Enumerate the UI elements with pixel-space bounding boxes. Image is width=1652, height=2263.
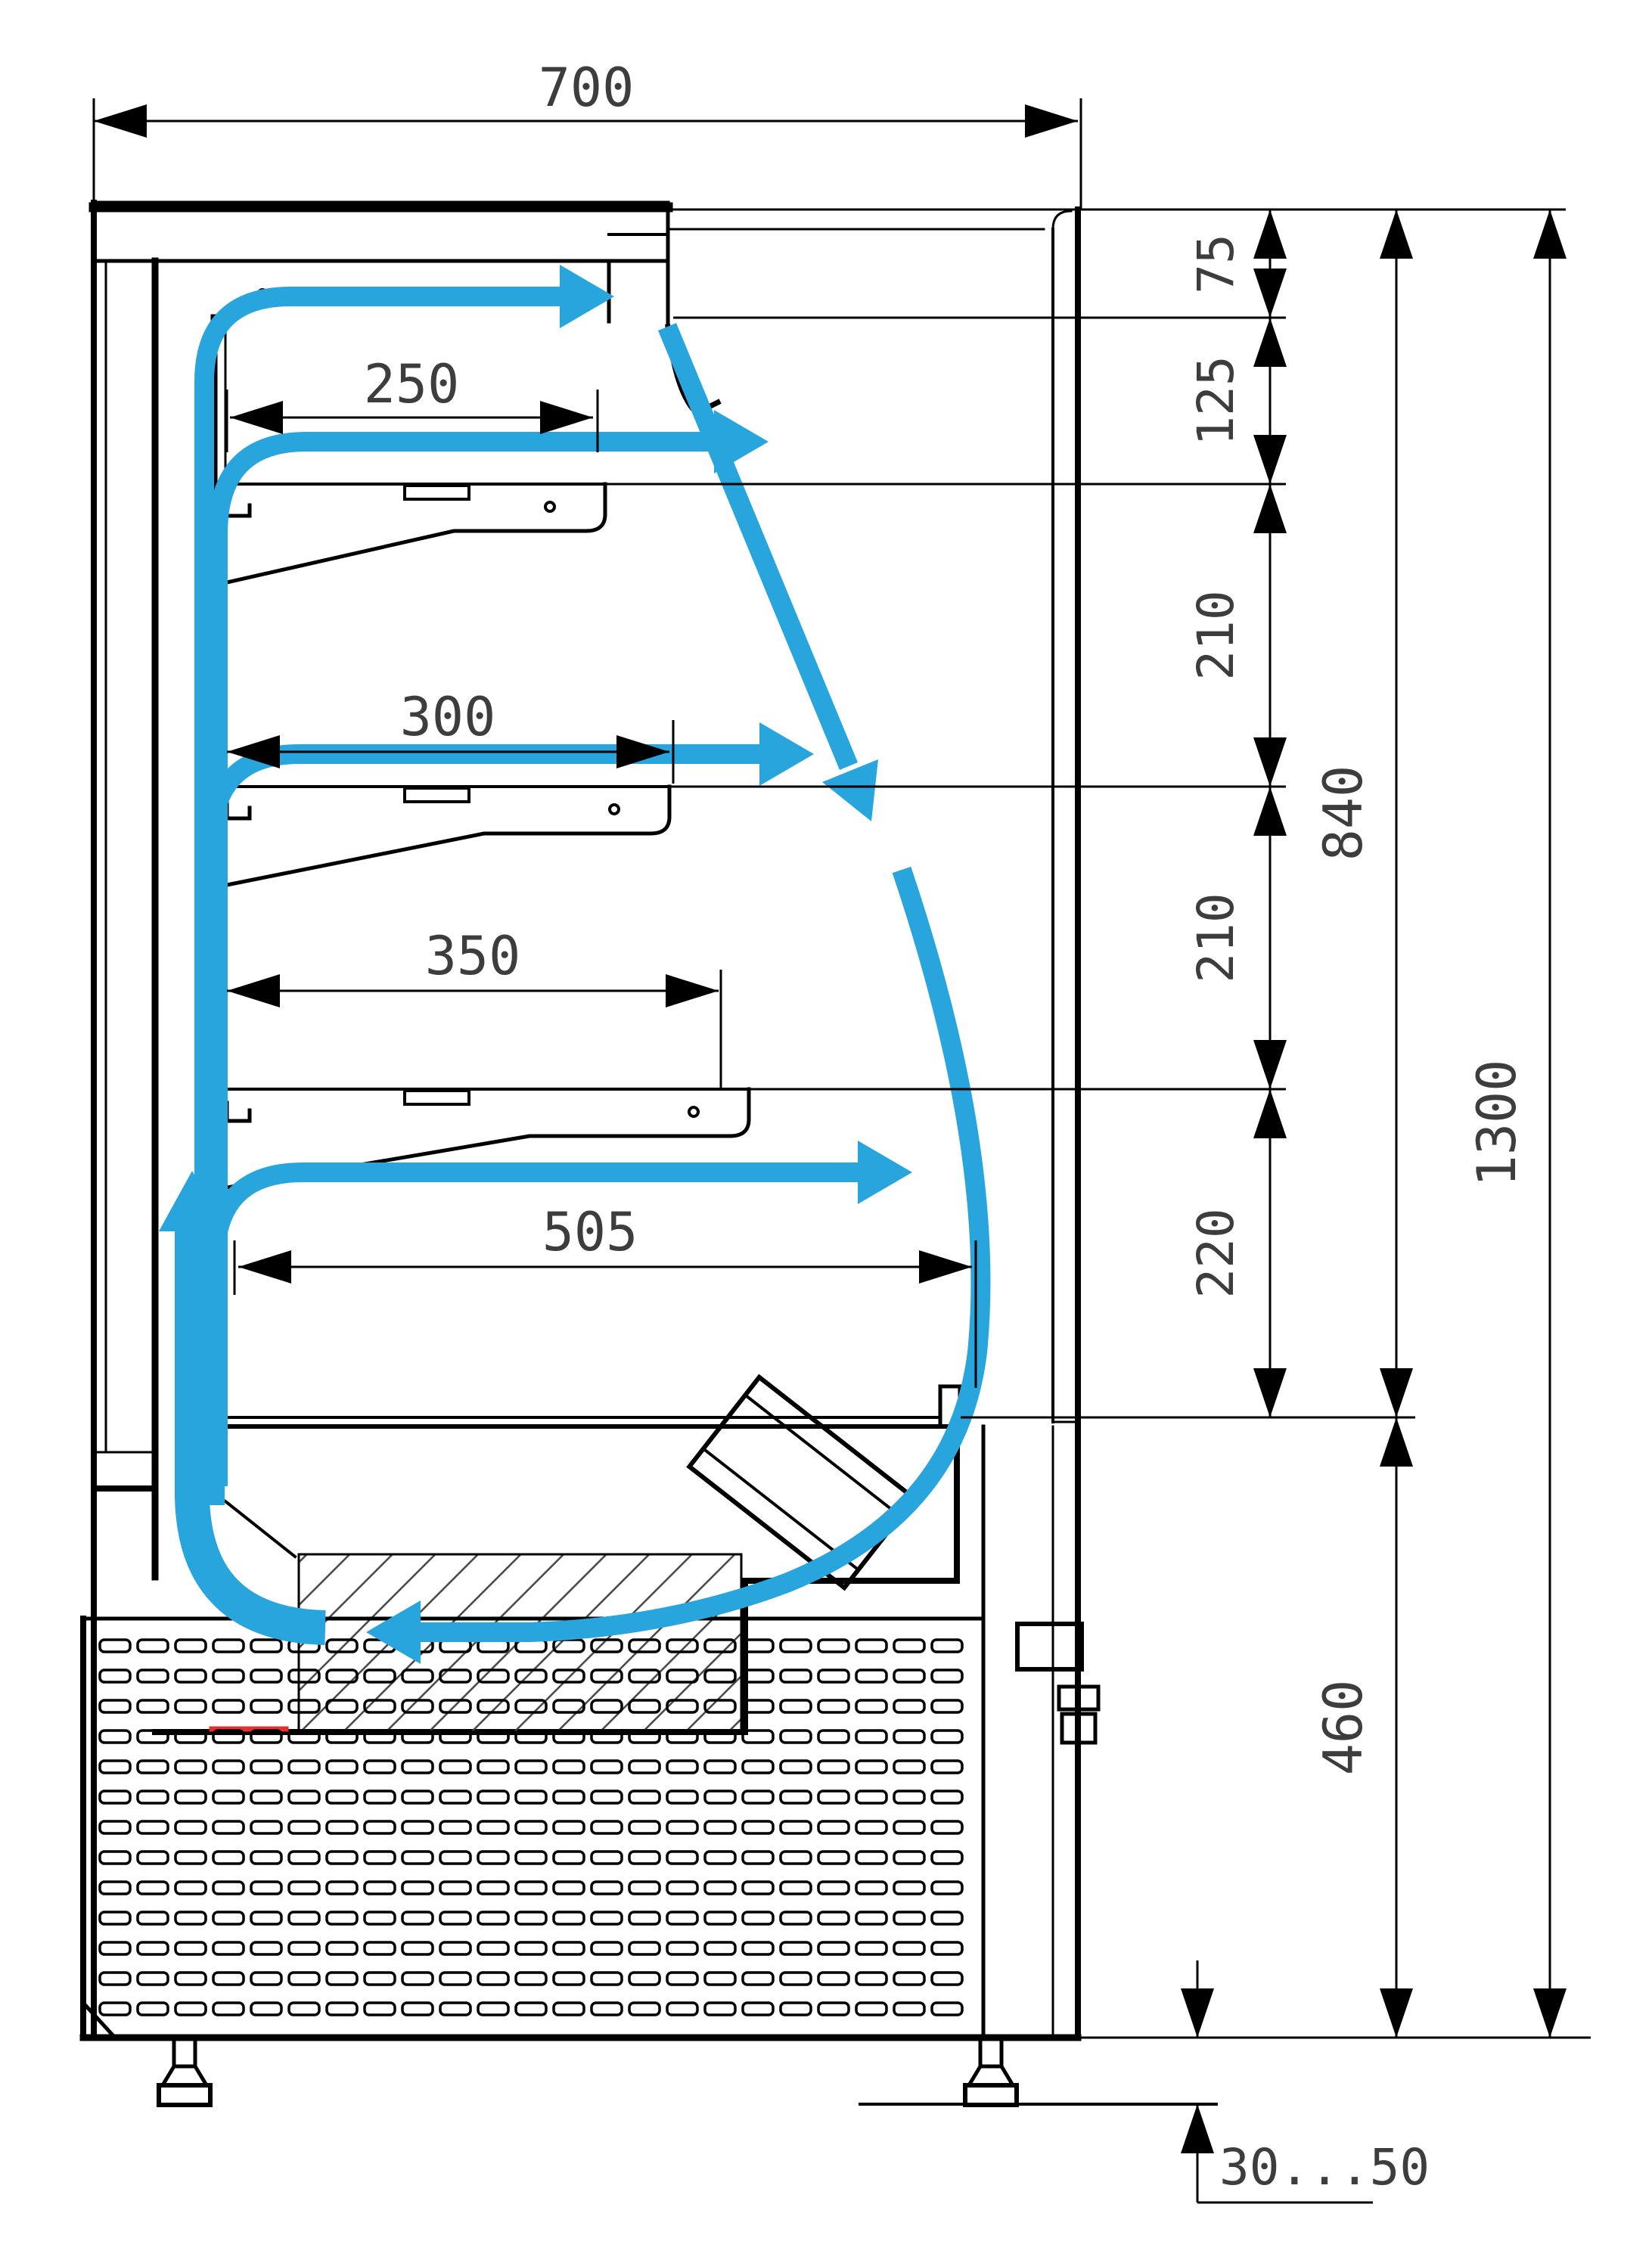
louvre-slot — [478, 1761, 508, 1773]
louvre-slot — [894, 1882, 924, 1894]
louvre-slot — [289, 2003, 319, 2015]
louvre-slot — [213, 1942, 244, 1954]
louvre-slot — [629, 1973, 660, 1985]
dimension-840-460 — [1380, 210, 1413, 2038]
louvre-slot — [213, 1791, 244, 1803]
louvre-slot — [894, 1761, 924, 1773]
louvre-slot — [213, 1882, 244, 1894]
louvre-slot — [743, 1973, 773, 1985]
louvre-slot — [251, 1791, 281, 1803]
louvre-slot — [743, 2003, 773, 2015]
louvre-slot — [365, 1791, 395, 1803]
louvre-slot — [667, 2003, 697, 2015]
louvre-slot — [213, 1852, 244, 1864]
louvre-slot — [138, 1882, 168, 1894]
louvre-slot — [818, 1700, 849, 1712]
dimension-labels: 700 250 300 350 505 75 125 210 210 220 8… — [364, 57, 1528, 2196]
louvre-slot — [554, 1912, 584, 1924]
louvre-slot — [894, 1791, 924, 1803]
louvre-slot — [667, 1882, 697, 1894]
louvre-slot — [856, 1700, 887, 1712]
louvre-slot — [365, 1882, 395, 1894]
louvre-slot — [327, 1912, 357, 1924]
louvre-slot — [629, 1942, 660, 1954]
label-shelf3-depth: 350 — [425, 925, 520, 987]
louvre-slot — [213, 1700, 244, 1712]
louvre-slot — [138, 1670, 168, 1682]
louvre-slot — [932, 1821, 962, 1833]
louvre-slot — [781, 1973, 811, 1985]
louvre-slot — [175, 1670, 206, 1682]
shelf-1-clip — [405, 486, 469, 499]
louvre-slot — [440, 1973, 470, 1985]
louvre-slot — [592, 2003, 622, 2015]
louvre-slot — [592, 1761, 622, 1773]
louvre-slot — [894, 1973, 924, 1985]
louvre-slot — [894, 2003, 924, 2015]
louvre-slot — [554, 1882, 584, 1894]
louvre-slot — [440, 1821, 470, 1833]
louvre-slot — [251, 1670, 281, 1682]
louvre-slot — [175, 1761, 206, 1773]
louvre-slot — [138, 1942, 168, 1954]
louvre-slot — [932, 2003, 962, 2015]
louvre-slot — [175, 1882, 206, 1894]
shelf-2-screw — [610, 805, 619, 814]
louvre-slot — [894, 1821, 924, 1833]
louvre-slot — [251, 1700, 281, 1712]
louvre-slot — [516, 1942, 546, 1954]
louvre-slot — [100, 1731, 130, 1743]
louvre-slot — [818, 1761, 849, 1773]
louvre-slot — [516, 1912, 546, 1924]
label-deck-depth: 505 — [542, 1201, 638, 1263]
louvre-slot — [138, 1640, 168, 1652]
louvre-slot — [138, 1821, 168, 1833]
louvre-slot — [251, 1942, 281, 1954]
shelf-2-hook — [227, 800, 250, 818]
louvre-slot — [705, 2003, 735, 2015]
louvre-slot — [894, 1852, 924, 1864]
louvre-slot — [251, 1973, 281, 1985]
louvre-slot — [781, 1882, 811, 1894]
cross-section-drawing: 700 250 300 350 505 75 125 210 210 220 8… — [0, 0, 1652, 2263]
louvre-slot — [327, 1852, 357, 1864]
louvre-slot — [327, 1791, 357, 1803]
louvre-slot — [932, 1670, 962, 1682]
louvre-slot — [554, 2003, 584, 2015]
louvre-slot — [516, 1882, 546, 1894]
label-foot-range: 30...50 — [1219, 2138, 1430, 2196]
drawing-canvas: 700 250 300 350 505 75 125 210 210 220 8… — [0, 0, 1652, 2263]
dimension-stack-right — [1253, 210, 1287, 1417]
louvre-slot — [289, 1942, 319, 1954]
louvre-slot — [554, 1973, 584, 1985]
louvre-slot — [667, 1912, 697, 1924]
louvre-slot — [213, 1640, 244, 1652]
louvre-slot — [138, 1912, 168, 1924]
louvre-slot — [138, 1852, 168, 1864]
louvre-slot — [402, 1852, 433, 1864]
louvre-slot — [743, 1942, 773, 1954]
louvre-slot — [592, 1912, 622, 1924]
shelf-3-clip — [405, 1091, 469, 1104]
louvre-slot — [402, 1761, 433, 1773]
louvre-slot — [667, 1791, 697, 1803]
louvre-slot — [175, 1640, 206, 1652]
label-canopy-height: 75 — [1187, 234, 1245, 293]
label-overall-height: 1300 — [1466, 1060, 1528, 1187]
louvre-slot — [138, 1791, 168, 1803]
louvre-slot — [856, 1912, 887, 1924]
shelf-1-screw — [545, 502, 554, 511]
dimension-350 — [227, 970, 721, 1088]
airflow-discharge — [204, 296, 566, 1486]
louvre-slot — [478, 1852, 508, 1864]
louvre-slot — [592, 1973, 622, 1985]
louvre-slot — [781, 1731, 811, 1743]
dimension-1300 — [1533, 210, 1567, 2038]
louvre-slot — [402, 1821, 433, 1833]
louvre-slot — [856, 1821, 887, 1833]
louvre-slot — [894, 1942, 924, 1954]
louvre-slot — [440, 1791, 470, 1803]
louvre-slot — [818, 1670, 849, 1682]
louvre-slot — [289, 1852, 319, 1864]
louvre-slot — [554, 1791, 584, 1803]
louvre-slot — [289, 1791, 319, 1803]
louvre-slot — [100, 1791, 130, 1803]
louvre-slot — [138, 1761, 168, 1773]
louvre-slot — [402, 1912, 433, 1924]
louvre-slot — [894, 1670, 924, 1682]
louvre-slot — [100, 2003, 130, 2015]
louvre-slot — [100, 1973, 130, 1985]
louvre-slot — [478, 1973, 508, 1985]
louvre-slot — [629, 1852, 660, 1864]
louvre-slot — [289, 1912, 319, 1924]
louvre-slot — [327, 1761, 357, 1773]
louvre-slot — [856, 1942, 887, 1954]
label-shelf3-to-deck: 220 — [1187, 1208, 1245, 1298]
louvre-slot — [856, 1852, 887, 1864]
louvre-slot — [818, 1973, 849, 1985]
louvre-slot — [743, 1761, 773, 1773]
shelf-2-clip — [405, 788, 469, 802]
louvre-slot — [516, 1761, 546, 1773]
louvre-slot — [629, 1882, 660, 1894]
air-guide — [225, 1501, 295, 1557]
louvre-slot — [932, 1973, 962, 1985]
louvre-slot — [781, 2003, 811, 2015]
louvre-slot — [894, 1640, 924, 1652]
label-base-height: 460 — [1312, 1680, 1374, 1775]
louvre-slot — [592, 1882, 622, 1894]
louvre-slot — [100, 1912, 130, 1924]
louvre-slot — [516, 2003, 546, 2015]
louvre-slot — [289, 1973, 319, 1985]
louvre-slot — [327, 2003, 357, 2015]
louvre-slot — [818, 2003, 849, 2015]
louvre-slot — [440, 1942, 470, 1954]
louvre-slot — [251, 1852, 281, 1864]
louvre-slot — [743, 1821, 773, 1833]
louvre-slot — [365, 1761, 395, 1773]
label-overall-depth: 700 — [539, 57, 634, 119]
louvre-slot — [365, 1821, 395, 1833]
louvre-slot — [856, 2003, 887, 2015]
adjustable-foot-left — [159, 2038, 210, 2105]
louvre-slot — [781, 1761, 811, 1773]
louvre-slot — [440, 1912, 470, 1924]
louvre-slot — [100, 1670, 130, 1682]
label-shelf2-depth: 300 — [400, 686, 495, 748]
louvre-slot — [516, 1791, 546, 1803]
louvre-slot — [932, 1761, 962, 1773]
louvre-slot — [251, 2003, 281, 2015]
louvre-slot — [440, 1852, 470, 1864]
louvre-slot — [327, 1973, 357, 1985]
louvre-slot — [100, 1700, 130, 1712]
louvre-slot — [667, 1942, 697, 1954]
louvre-slot — [327, 1821, 357, 1833]
louvre-slot — [440, 1761, 470, 1773]
louvre-slot — [856, 1761, 887, 1773]
shelf-1 — [225, 484, 605, 582]
adjustable-foot-right — [965, 2038, 1017, 2105]
louvre-slot — [932, 1791, 962, 1803]
louvre-slot — [175, 1912, 206, 1924]
louvre-slot — [175, 1791, 206, 1803]
louvre-slot — [100, 1640, 130, 1652]
louvre-slot — [213, 1670, 244, 1682]
louvre-slot — [818, 1731, 849, 1743]
louvre-slot — [818, 1640, 849, 1652]
louvre-slot — [592, 1821, 622, 1833]
louvre-slot — [100, 1761, 130, 1773]
louvre-slot — [818, 1942, 849, 1954]
louvre-slot — [743, 1852, 773, 1864]
louvre-slot — [856, 1670, 887, 1682]
louvre-slot — [781, 1640, 811, 1652]
label-shelf1-depth: 250 — [364, 353, 459, 415]
display-deck — [225, 1386, 960, 1426]
louvre-slot — [100, 1821, 130, 1833]
louvre-slot — [138, 2003, 168, 2015]
louvre-slot — [175, 2003, 206, 2015]
louvre-slot — [251, 1912, 281, 1924]
louvre-slot — [932, 1852, 962, 1864]
louvre-slot — [629, 1761, 660, 1773]
airflow-down-arrowhead-icon — [822, 759, 878, 821]
louvre-slot — [743, 1882, 773, 1894]
louvre-slot — [781, 1942, 811, 1954]
louvre-slot — [138, 1973, 168, 1985]
louvre-slot — [856, 1973, 887, 1985]
louvre-slot — [213, 1973, 244, 1985]
louvre-slot — [516, 1852, 546, 1864]
louvre-slot — [365, 2003, 395, 2015]
louvre-slot — [932, 1882, 962, 1894]
louvre-slot — [440, 1882, 470, 1894]
louvre-slot — [743, 1912, 773, 1924]
airflow-right-arrowhead-icon — [560, 265, 614, 328]
shelf-2 — [225, 787, 669, 885]
louvre-slot — [478, 1821, 508, 1833]
louvre-slot — [818, 1791, 849, 1803]
label-canopy-to-shelf1: 125 — [1187, 355, 1245, 445]
louvre-slot — [629, 1791, 660, 1803]
louvre-slot — [932, 1700, 962, 1712]
louvre-slot — [440, 2003, 470, 2015]
louvre-slot — [629, 1912, 660, 1924]
louvre-slot — [327, 1942, 357, 1954]
louvre-slot — [478, 1912, 508, 1924]
louvre-slot — [894, 1700, 924, 1712]
louvre-slot — [213, 2003, 244, 2015]
louvre-slot — [705, 1791, 735, 1803]
louvre-slot — [289, 1821, 319, 1833]
louvre-slot — [781, 1852, 811, 1864]
louvre-slot — [175, 1821, 206, 1833]
louvre-slot — [251, 1761, 281, 1773]
louvre-slot — [818, 1912, 849, 1924]
louvre-slot — [402, 1882, 433, 1894]
louvre-slot — [138, 1700, 168, 1712]
louvre-slot — [327, 1882, 357, 1894]
louvre-slot — [365, 1912, 395, 1924]
louvre-slot — [478, 1882, 508, 1894]
louvre-slot — [856, 1791, 887, 1803]
louvre-slot — [175, 1700, 206, 1712]
louvre-slot — [175, 1852, 206, 1864]
louvre-slot — [667, 1761, 697, 1773]
louvre-slot — [781, 1791, 811, 1803]
louvre-slot — [175, 1942, 206, 1954]
louvre-slot — [402, 1942, 433, 1954]
louvre-slot — [705, 1973, 735, 1985]
louvre-slot — [554, 1942, 584, 1954]
louvre-slot — [289, 1761, 319, 1773]
louvre-slot — [781, 1700, 811, 1712]
louvre-slot — [402, 2003, 433, 2015]
shelf-3-screw — [689, 1107, 698, 1116]
louvre-slot — [365, 1852, 395, 1864]
louvre-slot — [629, 1821, 660, 1833]
louvre-slot — [251, 1821, 281, 1833]
louvre-slot — [478, 2003, 508, 2015]
louvre-slot — [100, 1882, 130, 1894]
louvre-slot — [667, 1852, 697, 1864]
louvre-slot — [554, 1852, 584, 1864]
louvre-slot — [592, 1942, 622, 1954]
louvre-slot — [894, 1912, 924, 1924]
louvre-slot — [213, 1821, 244, 1833]
louvre-slot — [289, 1882, 319, 1894]
louvre-slot — [592, 1852, 622, 1864]
louvre-slot — [856, 1882, 887, 1894]
louvre-slot — [932, 1942, 962, 1954]
louvre-slot — [818, 1852, 849, 1864]
louvre-slot — [251, 1882, 281, 1894]
louvre-slot — [554, 1821, 584, 1833]
airflow-curtain-upper — [667, 327, 849, 766]
airflow-right-arrowhead-icon — [858, 1141, 912, 1204]
shelf-3-hook — [227, 1103, 250, 1121]
louvre-slot — [516, 1821, 546, 1833]
louvre-slot — [932, 1912, 962, 1924]
louvre-slot — [705, 1761, 735, 1773]
louvre-slot — [856, 1731, 887, 1743]
louvre-slot — [705, 1942, 735, 1954]
louvre-slot — [402, 1791, 433, 1803]
louvre-slot — [213, 1912, 244, 1924]
louvre-slot — [894, 1731, 924, 1743]
louvre-slot — [818, 1821, 849, 1833]
airflow-shelf2 — [212, 754, 765, 1486]
label-display-opening-height: 840 — [1312, 765, 1374, 861]
louvre-slot — [402, 1973, 433, 1985]
panel-latch — [1017, 1624, 1082, 1669]
louvre-slot — [554, 1761, 584, 1773]
louvre-slot — [781, 1821, 811, 1833]
louvre-slot — [932, 1731, 962, 1743]
louvre-slot — [818, 1882, 849, 1894]
louvre-slot — [781, 1912, 811, 1924]
louvre-slot — [100, 1852, 130, 1864]
louvre-slot — [592, 1791, 622, 1803]
louvre-slot — [478, 1791, 508, 1803]
louvre-slot — [251, 1640, 281, 1652]
louvre-slot — [856, 1640, 887, 1652]
louvre-slot — [705, 1852, 735, 1864]
louvre-slot — [175, 1973, 206, 1985]
label-shelf2-to-shelf3: 210 — [1187, 892, 1245, 982]
louvre-slot — [365, 1973, 395, 1985]
louvre-slot — [100, 1942, 130, 1954]
label-shelf1-to-shelf2: 210 — [1187, 590, 1245, 680]
louvre-slot — [629, 2003, 660, 2015]
louvre-slot — [365, 1942, 395, 1954]
louvre-slot — [516, 1973, 546, 1985]
louvre-slot — [781, 1670, 811, 1682]
louvre-slot — [667, 1821, 697, 1833]
louvre-slot — [705, 1882, 735, 1894]
louvre-slot — [705, 1912, 735, 1924]
louvre-slot — [478, 1942, 508, 1954]
louvre-slot — [932, 1640, 962, 1652]
louvre-slot — [213, 1761, 244, 1773]
louvre-slot — [667, 1973, 697, 1985]
louvre-slot — [743, 1791, 773, 1803]
louvre-slot — [705, 1821, 735, 1833]
airflow-deck — [215, 1172, 864, 1505]
airflow-right-arrowhead-icon — [759, 722, 814, 786]
